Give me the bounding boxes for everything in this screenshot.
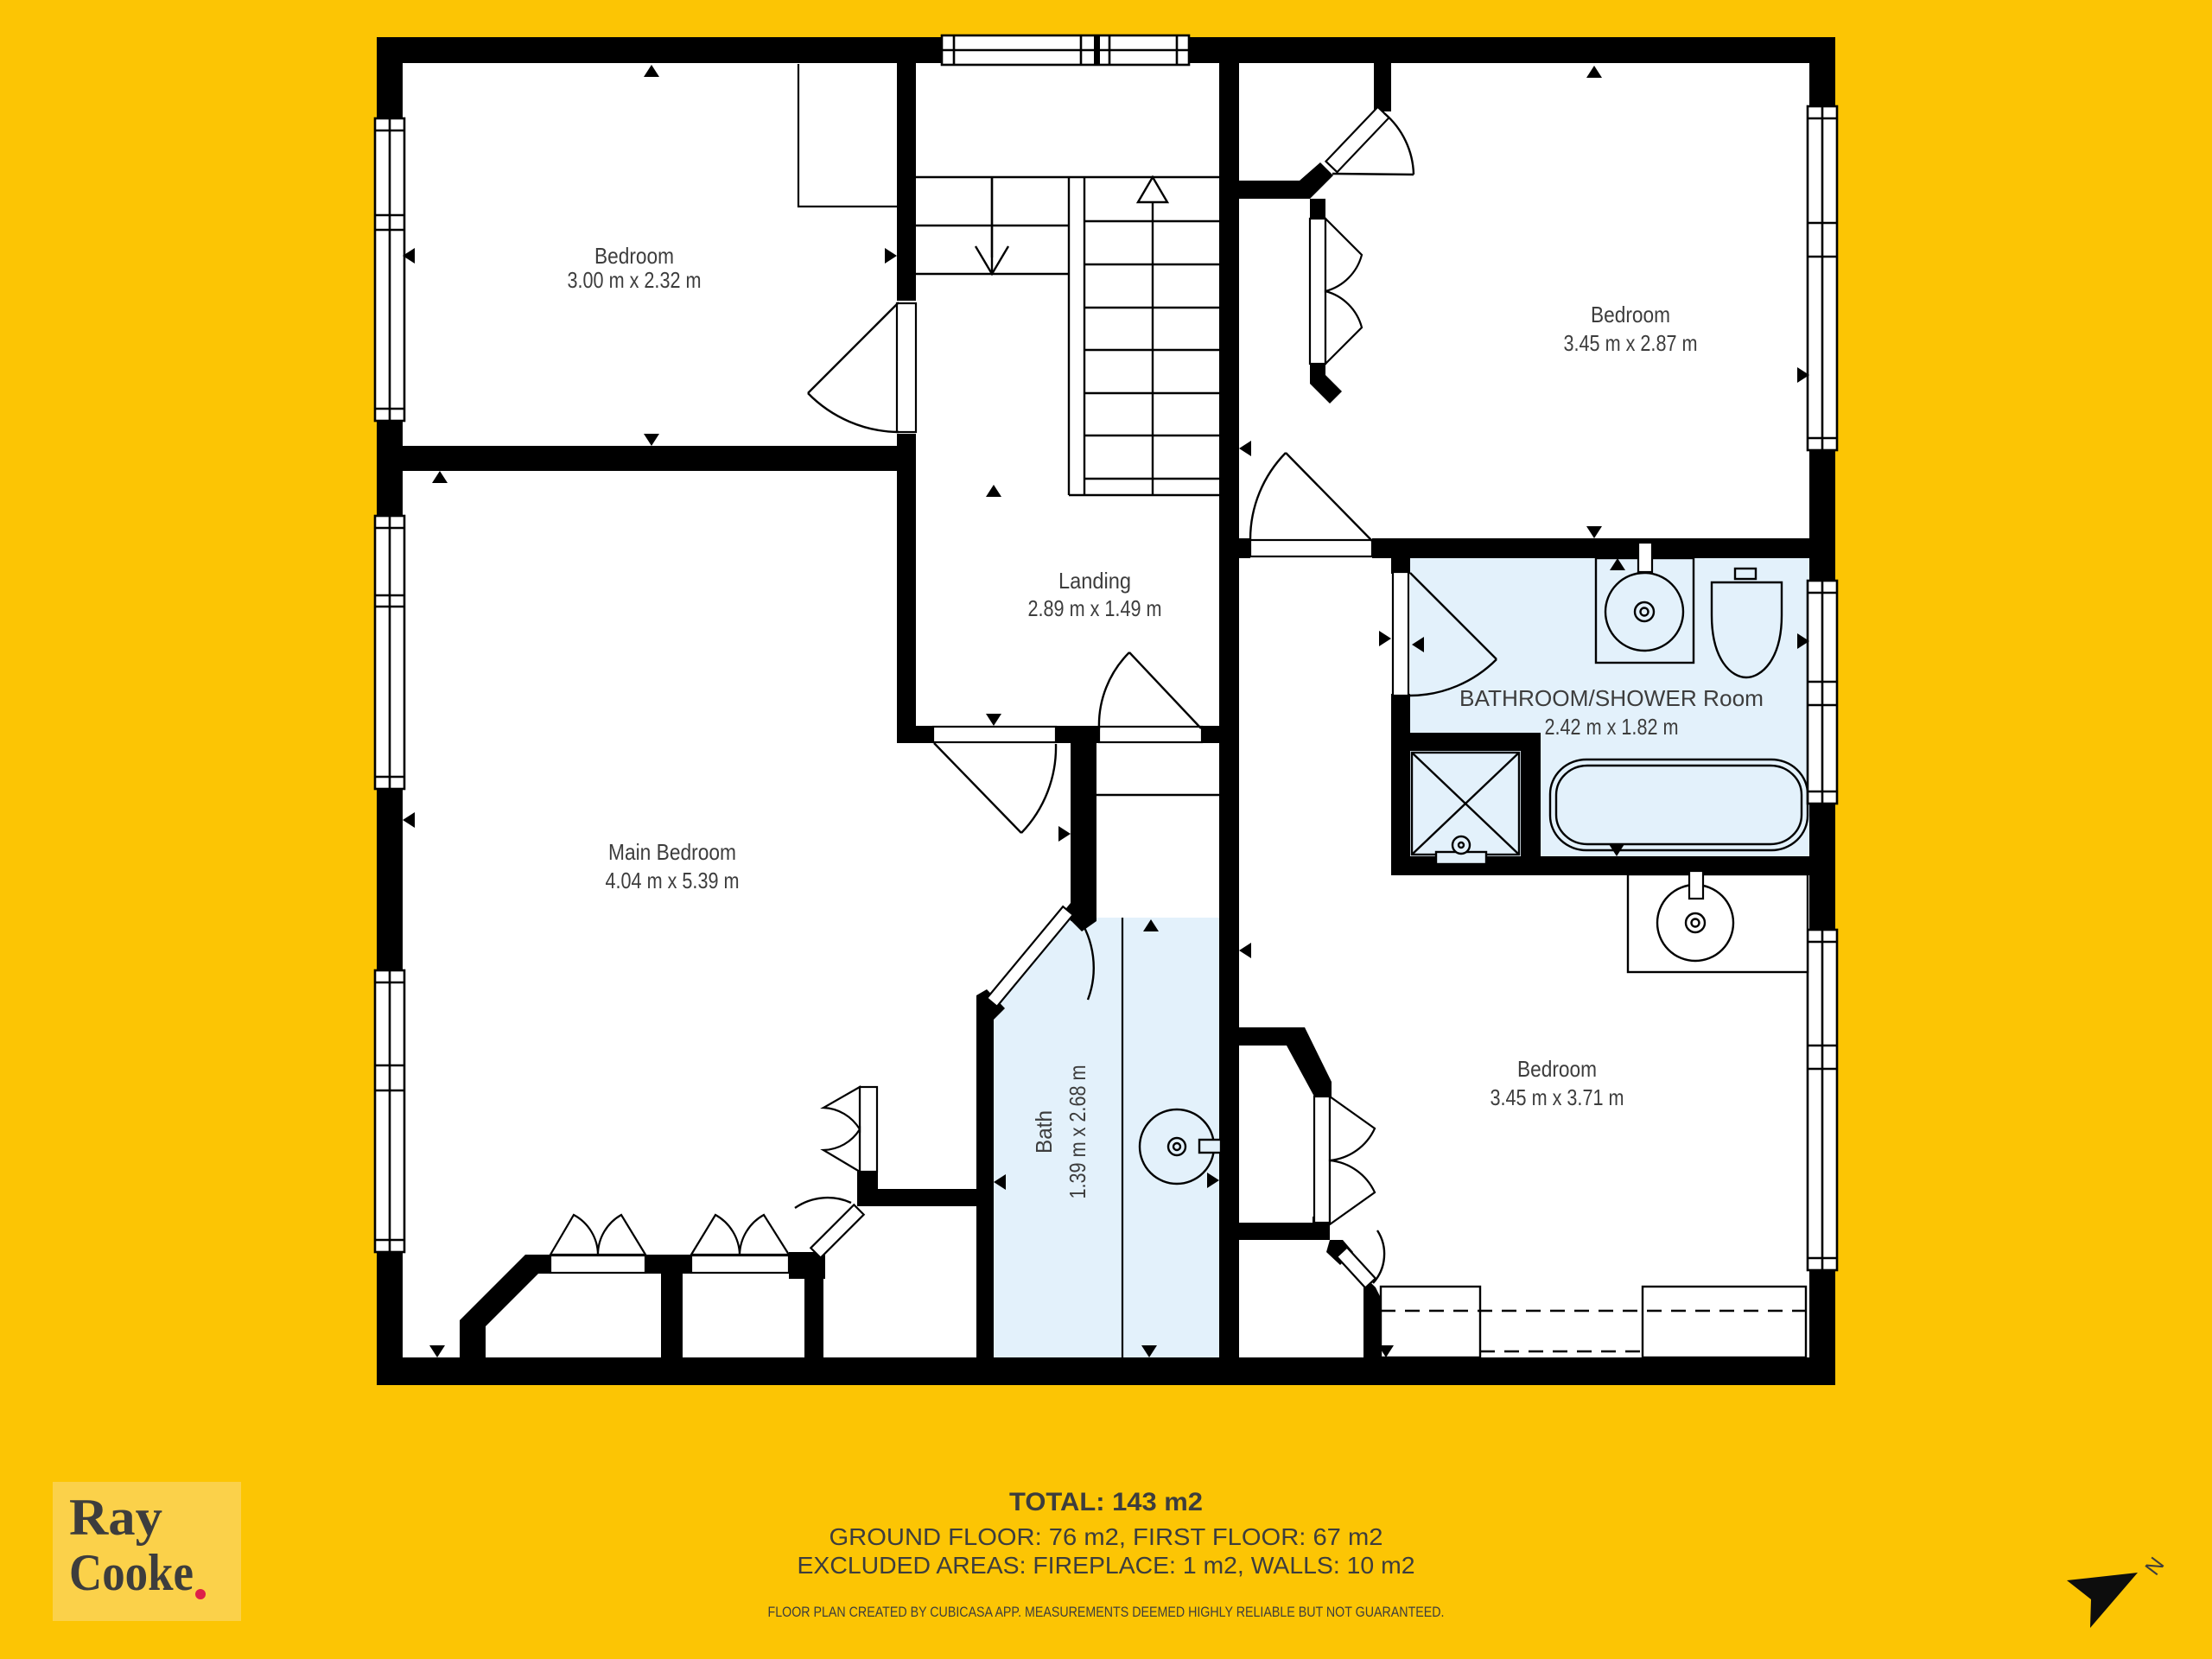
svg-text:GROUND FLOOR: 76 m2, FIRST FLO: GROUND FLOOR: 76 m2, FIRST FLOOR: 67 m2 <box>829 1523 1383 1550</box>
svg-text:Ray: Ray <box>69 1489 162 1546</box>
svg-text:EXCLUDED AREAS: FIREPLACE: 1 m: EXCLUDED AREAS: FIREPLACE: 1 m2, WALLS: … <box>798 1552 1415 1579</box>
svg-text:1.39 m x 2.68 m: 1.39 m x 2.68 m <box>1065 1065 1090 1199</box>
svg-text:Landing: Landing <box>1058 568 1131 594</box>
svg-text:BATHROOM/SHOWER Room: BATHROOM/SHOWER Room <box>1459 685 1764 711</box>
svg-text:Bedroom: Bedroom <box>1517 1056 1597 1082</box>
svg-text:2.89 m x 1.49 m: 2.89 m x 1.49 m <box>1028 595 1162 621</box>
svg-text:FLOOR PLAN CREATED BY CUBICASA: FLOOR PLAN CREATED BY CUBICASA APP. MEAS… <box>768 1605 1445 1620</box>
svg-text:4.04 m x 5.39 m: 4.04 m x 5.39 m <box>606 868 740 893</box>
svg-text:Bedroom: Bedroom <box>594 243 674 269</box>
svg-text:Bedroom: Bedroom <box>1591 302 1670 327</box>
svg-text:3.45 m x 2.87 m: 3.45 m x 2.87 m <box>1564 330 1698 356</box>
svg-text:3.45 m x 3.71 m: 3.45 m x 3.71 m <box>1491 1084 1624 1110</box>
svg-text:2.42 m x 1.82 m: 2.42 m x 1.82 m <box>1545 714 1679 740</box>
svg-text:TOTAL: 143 m2: TOTAL: 143 m2 <box>1009 1488 1203 1516</box>
svg-text:Main Bedroom: Main Bedroom <box>608 839 736 865</box>
svg-text:3.00 m x 2.32 m: 3.00 m x 2.32 m <box>568 267 702 293</box>
svg-text:Bath: Bath <box>1031 1110 1057 1154</box>
svg-text:Cooke: Cooke <box>69 1544 194 1601</box>
